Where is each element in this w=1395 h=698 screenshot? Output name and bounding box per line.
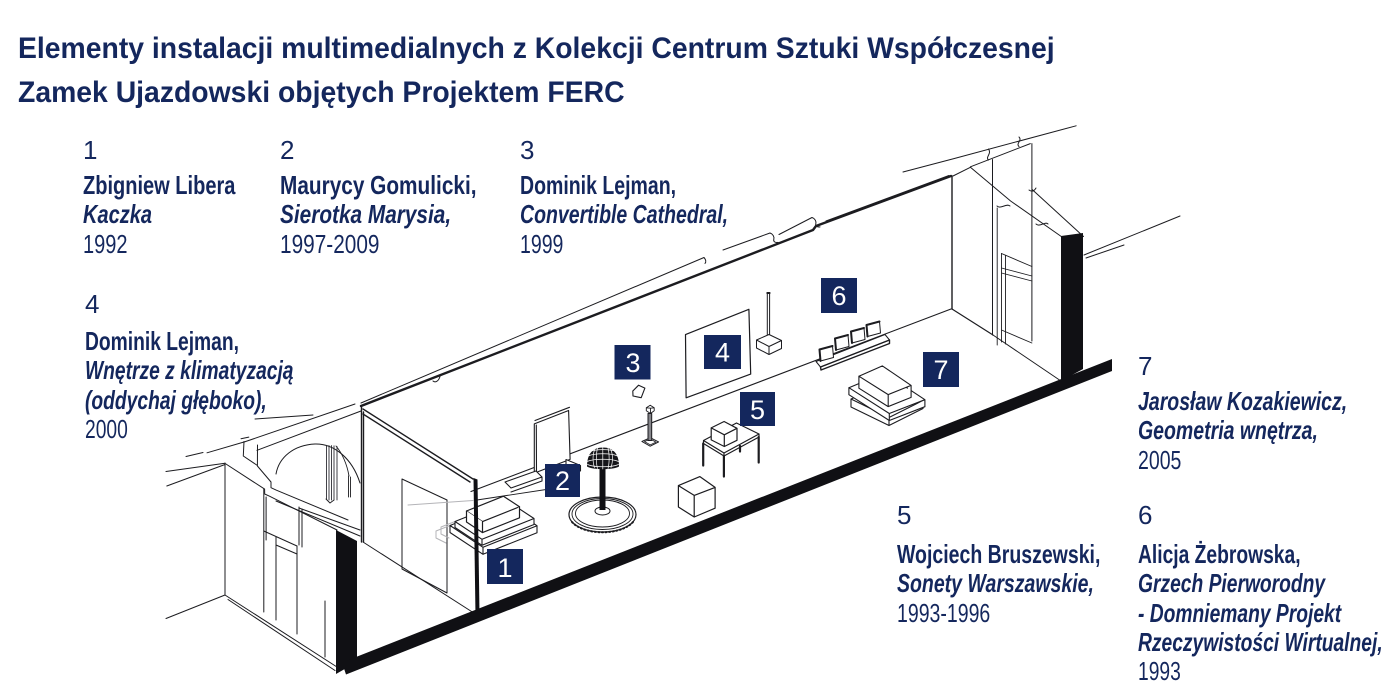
svg-text:7: 7 [933,355,948,385]
svg-text:4: 4 [715,338,730,368]
svg-text:5: 5 [750,395,765,425]
svg-text:3: 3 [625,348,640,378]
svg-text:1: 1 [497,553,512,583]
svg-text:2: 2 [555,466,570,496]
svg-text:6: 6 [831,281,846,311]
